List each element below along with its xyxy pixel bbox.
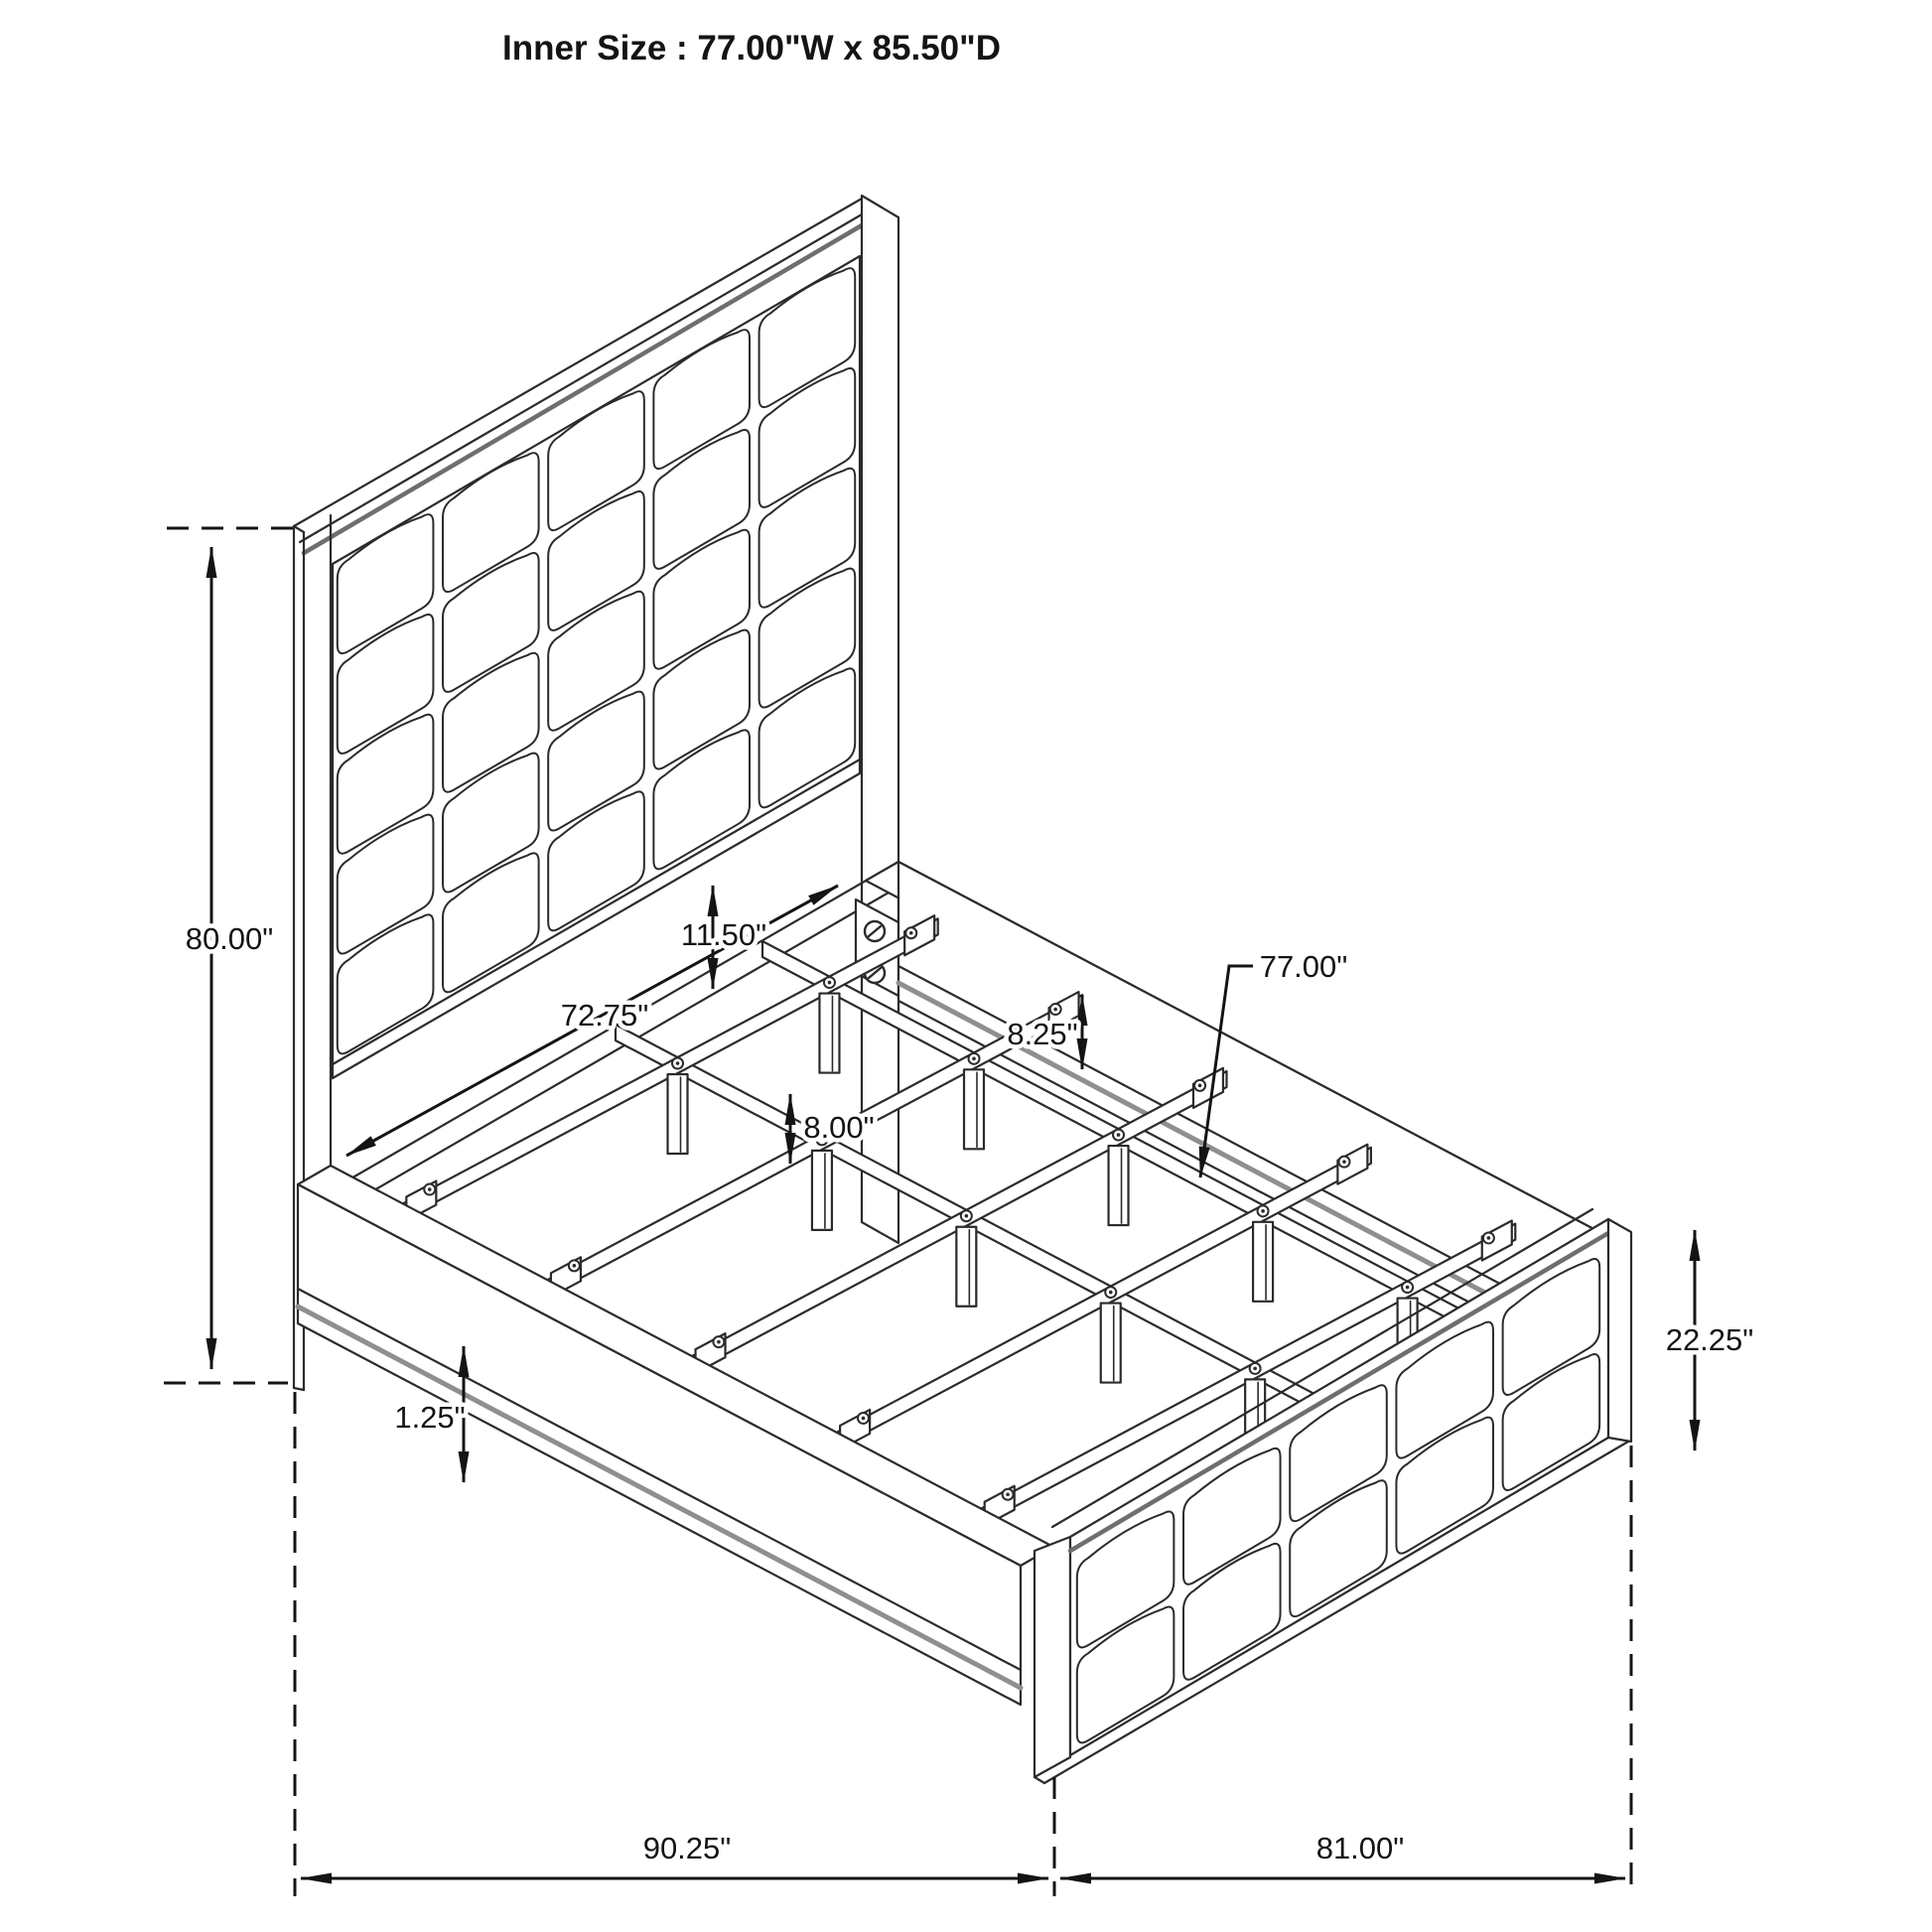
label-inner-post-width: 72.75" [561, 998, 649, 1033]
label-slat-width: 77.00" [1260, 949, 1348, 984]
label-leg-height: 8.00" [803, 1110, 874, 1145]
label-overall-depth: 90.25" [643, 1831, 732, 1865]
diagram-canvas: Inner Size : 77.00"W x 85.50"D 80.00" 11… [0, 0, 1932, 1932]
label-headboard-clearance: 11.50" [681, 917, 766, 952]
label-headboard-height: 80.00" [186, 921, 274, 956]
page-title: Inner Size : 77.00"W x 85.50"D [502, 29, 1001, 68]
label-rail-drop: 8.25" [1007, 1017, 1077, 1051]
label-base-height: 1.25" [394, 1400, 465, 1435]
label-overall-width: 81.00" [1316, 1831, 1405, 1865]
label-footboard-height: 22.25" [1666, 1322, 1754, 1357]
bed-line-art [294, 196, 1631, 1783]
bed-dimension-diagram: Inner Size : 77.00"W x 85.50"D 80.00" 11… [0, 0, 1932, 1932]
